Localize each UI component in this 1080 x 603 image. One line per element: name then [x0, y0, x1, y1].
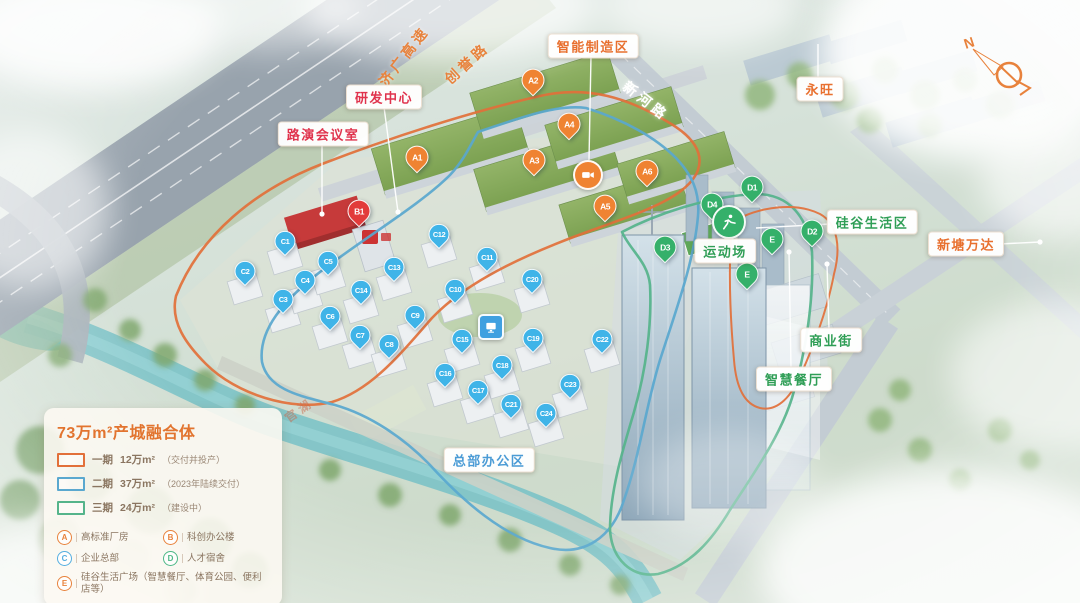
- phase-name: 三期: [92, 500, 113, 515]
- guanhu-river-label: 官湖: [281, 394, 317, 426]
- marker-a6: A6: [631, 155, 664, 188]
- marker-pin-label: C6: [321, 307, 340, 326]
- marker-pin-label: C22: [593, 330, 612, 349]
- marker-pin-label: C17: [469, 381, 488, 400]
- key-label: 硅谷生活广场（智慧餐厅、体育公园、便利店等）: [81, 572, 269, 596]
- key-letter-icon: D: [163, 551, 178, 566]
- marker-c18: C18: [487, 350, 517, 380]
- marker-pin-label: C2: [236, 262, 255, 281]
- phase-name: 二期: [92, 476, 113, 491]
- legend-phase-row: 三期 24万m² （建设中）: [57, 500, 269, 515]
- legend-key-item: E 硅谷生活广场（智慧餐厅、体育公园、便利店等）: [57, 572, 269, 596]
- masterplan-aerial-view: 路演会议室研发中心智能制造区永旺硅谷生活区新塘万达商业街智慧餐厅运动场总部办公区…: [0, 0, 1080, 603]
- marker-pin-label: C21: [502, 395, 521, 414]
- marker-c9: C9: [400, 300, 430, 330]
- marker-c5: C5: [313, 246, 343, 276]
- marker-pin-label: D1: [742, 177, 763, 198]
- aeon-label: 永旺: [796, 77, 843, 102]
- monitor-icon: [478, 314, 504, 340]
- marker-pin-label: B1: [349, 201, 370, 222]
- legend-panel: 73万m²产城融合体 一期 12万m² （交付并投产） 二期 37万m² （20…: [44, 408, 282, 603]
- marker-c8: C8: [374, 329, 404, 359]
- legend-key-item: A 高标准厂房: [57, 530, 163, 545]
- marker-c1: C1: [270, 226, 300, 256]
- marker-pin-label: A2: [523, 70, 544, 91]
- marker-e-35: E: [756, 223, 789, 256]
- key-label: 科创办公楼: [187, 532, 235, 544]
- marker-pin-label: C20: [523, 270, 542, 289]
- marker-c16: C16: [430, 358, 460, 388]
- marker-pin-label: A5: [595, 196, 616, 217]
- marker-a1: A1: [401, 141, 434, 174]
- sports-field-label: 运动场: [694, 239, 756, 264]
- marker-pin-label: A4: [559, 114, 580, 135]
- marker-pin-label: C16: [436, 364, 455, 383]
- key-divider: [76, 533, 77, 542]
- marker-c10: C10: [440, 274, 470, 304]
- legend-phase-row: 二期 37万m² （2023年陆续交付）: [57, 476, 269, 491]
- rd-center-label: 研发中心: [346, 85, 422, 110]
- marker-pin-label: C1: [276, 232, 295, 251]
- marker-c19: C19: [518, 323, 548, 353]
- marker-c15: C15: [447, 324, 477, 354]
- phase-name: 一期: [92, 452, 113, 467]
- marker-pin-label: C14: [352, 281, 371, 300]
- legend-phase-row: 一期 12万m² （交付并投产）: [57, 452, 269, 467]
- legend-key-item: C 企业总部: [57, 551, 163, 566]
- marker-pin-label: C23: [561, 375, 580, 394]
- marker-c6: C6: [315, 301, 345, 331]
- marker-a3: A3: [518, 144, 551, 177]
- marker-a4: A4: [553, 108, 586, 141]
- phase-swatch: [57, 453, 85, 467]
- commercial-street-label: 商业街: [800, 328, 862, 353]
- marker-c13: C13: [379, 252, 409, 282]
- compass: N: [958, 30, 1042, 101]
- xintang-wanda-label: 新塘万达: [928, 232, 1004, 257]
- marker-c14: C14: [346, 275, 376, 305]
- marker-c22: C22: [587, 324, 617, 354]
- marker-pin-label: C11: [478, 248, 497, 267]
- marker-pin-label: C24: [537, 404, 556, 423]
- phase-area: 24万m²: [120, 500, 155, 515]
- marker-pin-label: C15: [453, 330, 472, 349]
- xinhe-road-label: 新河路: [619, 76, 674, 125]
- marker-d3: D3: [649, 231, 682, 264]
- legend-key-item: D 人才宿舍: [163, 551, 269, 566]
- marker-c17: C17: [463, 375, 493, 405]
- roadshow-meeting-room-label: 路演会议室: [278, 122, 369, 147]
- phase-note: （交付并投产）: [162, 453, 225, 466]
- legend-phases: 一期 12万m² （交付并投产） 二期 37万m² （2023年陆续交付） 三期…: [57, 452, 269, 515]
- marker-pin-label: D2: [802, 221, 823, 242]
- marker-pin-label: C18: [493, 356, 512, 375]
- legend-key-item: B 科创办公楼: [163, 530, 269, 545]
- marker-c2: C2: [230, 256, 260, 286]
- runner-icon: [712, 205, 746, 239]
- marker-pin-label: C12: [430, 225, 449, 244]
- key-letter-icon: B: [163, 530, 178, 545]
- phase-area: 37万m²: [120, 476, 155, 491]
- marker-c12: C12: [424, 219, 454, 249]
- phase-note: （2023年陆续交付）: [162, 477, 245, 490]
- phase-swatch: [57, 501, 85, 515]
- marker-b1: B1: [343, 195, 376, 228]
- camera-icon: [573, 160, 603, 190]
- key-letter-icon: E: [57, 576, 72, 591]
- marker-c3: C3: [268, 284, 298, 314]
- marker-d2: D2: [796, 215, 829, 248]
- marker-pin-label: C7: [351, 326, 370, 345]
- key-label: 高标准厂房: [81, 532, 129, 544]
- marker-pin-label: C13: [385, 258, 404, 277]
- silicon-valley-living-zone-label: 硅谷生活区: [827, 210, 918, 235]
- chuangyu-road-label: 创誉路: [440, 38, 494, 89]
- key-divider: [182, 554, 183, 563]
- key-letter-icon: A: [57, 530, 72, 545]
- jiguang-expressway-label: 济广高速: [374, 21, 434, 90]
- marker-pin-label: C8: [380, 335, 399, 354]
- marker-pin-label: C5: [319, 252, 338, 271]
- key-letter-icon: C: [57, 551, 72, 566]
- marker-c11: C11: [472, 242, 502, 272]
- marker-pin-label: C3: [274, 290, 293, 309]
- key-label: 企业总部: [81, 553, 119, 565]
- marker-pin-label: A3: [524, 150, 545, 171]
- marker-a2: A2: [517, 64, 550, 97]
- marker-pin-label: C19: [524, 329, 543, 348]
- hq-office-zone-label: 总部办公区: [444, 448, 535, 473]
- legend-title: 73万m²产城融合体: [57, 419, 269, 443]
- marker-c20: C20: [517, 264, 547, 294]
- marker-c7: C7: [345, 320, 375, 350]
- marker-d1: D1: [736, 171, 769, 204]
- marker-pin-label: A1: [407, 147, 428, 168]
- marker-pin-label: C10: [446, 280, 465, 299]
- key-label: 人才宿舍: [187, 553, 225, 565]
- compass-tail: [1017, 81, 1030, 95]
- smart-manufacturing-zone-label: 智能制造区: [548, 34, 639, 59]
- smart-restaurant-label: 智慧餐厅: [756, 367, 832, 392]
- marker-pin-label: C4: [296, 271, 315, 290]
- marker-pin-label: D3: [655, 237, 676, 258]
- marker-c24: C24: [531, 398, 561, 428]
- key-divider: [182, 533, 183, 542]
- phase-area: 12万m²: [120, 452, 155, 467]
- marker-c21: C21: [496, 389, 526, 419]
- marker-c23: C23: [555, 369, 585, 399]
- legend-keys: A 高标准厂房 B 科创办公楼 C 企业总部 D 人才宿舍 E 硅谷生活广场（智…: [57, 524, 269, 596]
- key-divider: [76, 554, 77, 563]
- marker-pin-label: C9: [406, 306, 425, 325]
- marker-pin-label: E: [737, 264, 758, 285]
- marker-a5: A5: [589, 190, 622, 223]
- phase-note: （建设中）: [162, 501, 207, 514]
- phase-swatch: [57, 477, 85, 491]
- marker-pin-label: E: [762, 229, 783, 250]
- marker-c4: C4: [290, 265, 320, 295]
- key-divider: [76, 579, 77, 588]
- marker-pin-label: A6: [637, 161, 658, 182]
